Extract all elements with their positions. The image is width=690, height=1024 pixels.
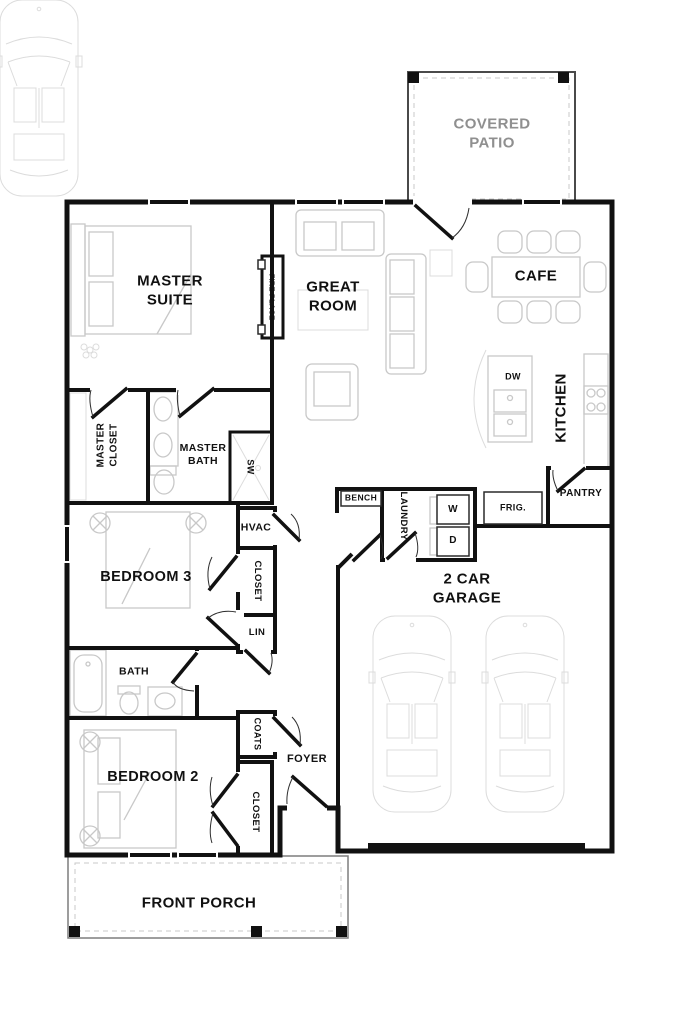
master-bath-label: MASTER BATH [174,442,232,468]
master-closet-label: MASTER CLOSET [96,415,121,475]
foyer-label: FOYER [287,753,327,767]
porch-post [336,926,347,937]
window [150,200,188,204]
dryer-label: D [449,535,457,548]
window [297,200,336,204]
cafe-label: CAFE [515,268,557,287]
window [344,200,383,204]
front-porch-label: FRONT PORCH [142,895,256,914]
porch-post [69,926,80,937]
linen-label: LIN [249,627,266,639]
window [524,200,560,204]
floorplan-drawing [0,0,690,1024]
dishwasher-label: DW [505,371,521,382]
master-suite-label: MASTER SUITE [130,272,210,310]
bath-label: BATH [119,665,149,678]
laundry-label: LAUNDRY [397,492,409,541]
covered-patio-label: COVERED PATIO [442,115,542,153]
car [0,0,82,196]
bedroom2-label: BEDROOM 2 [107,768,198,786]
shower-label: SW [244,459,255,474]
window [130,853,170,857]
bench-label: BENCH [345,493,377,504]
bedroom3-label: BEDROOM 3 [100,568,191,586]
great-room-label: GREAT ROOM [298,278,368,316]
garage-label: 2 CAR GARAGE [425,570,510,608]
window [65,527,69,561]
patio-post [408,72,419,83]
closet-bedroom3-label: CLOSET [251,561,263,602]
washer-label: W [448,504,458,517]
hvac-label: HVAC [241,521,272,534]
coats-label: COATS [251,718,262,751]
patio-post [558,72,569,83]
window [179,853,216,857]
floor-plan: COVERED PATIO MASTER SUITE GREAT ROOM CA… [0,0,690,1024]
kitchen-label: KITCHEN [553,373,572,442]
refrigerator-label: FRIG. [500,502,526,513]
porch-post [251,926,262,937]
fireplace-label: FIRE PLACE [267,274,276,321]
closet-bedroom2-label: CLOSET [249,792,261,833]
garage-door [368,843,585,850]
pantry-label: PANTRY [560,488,602,501]
